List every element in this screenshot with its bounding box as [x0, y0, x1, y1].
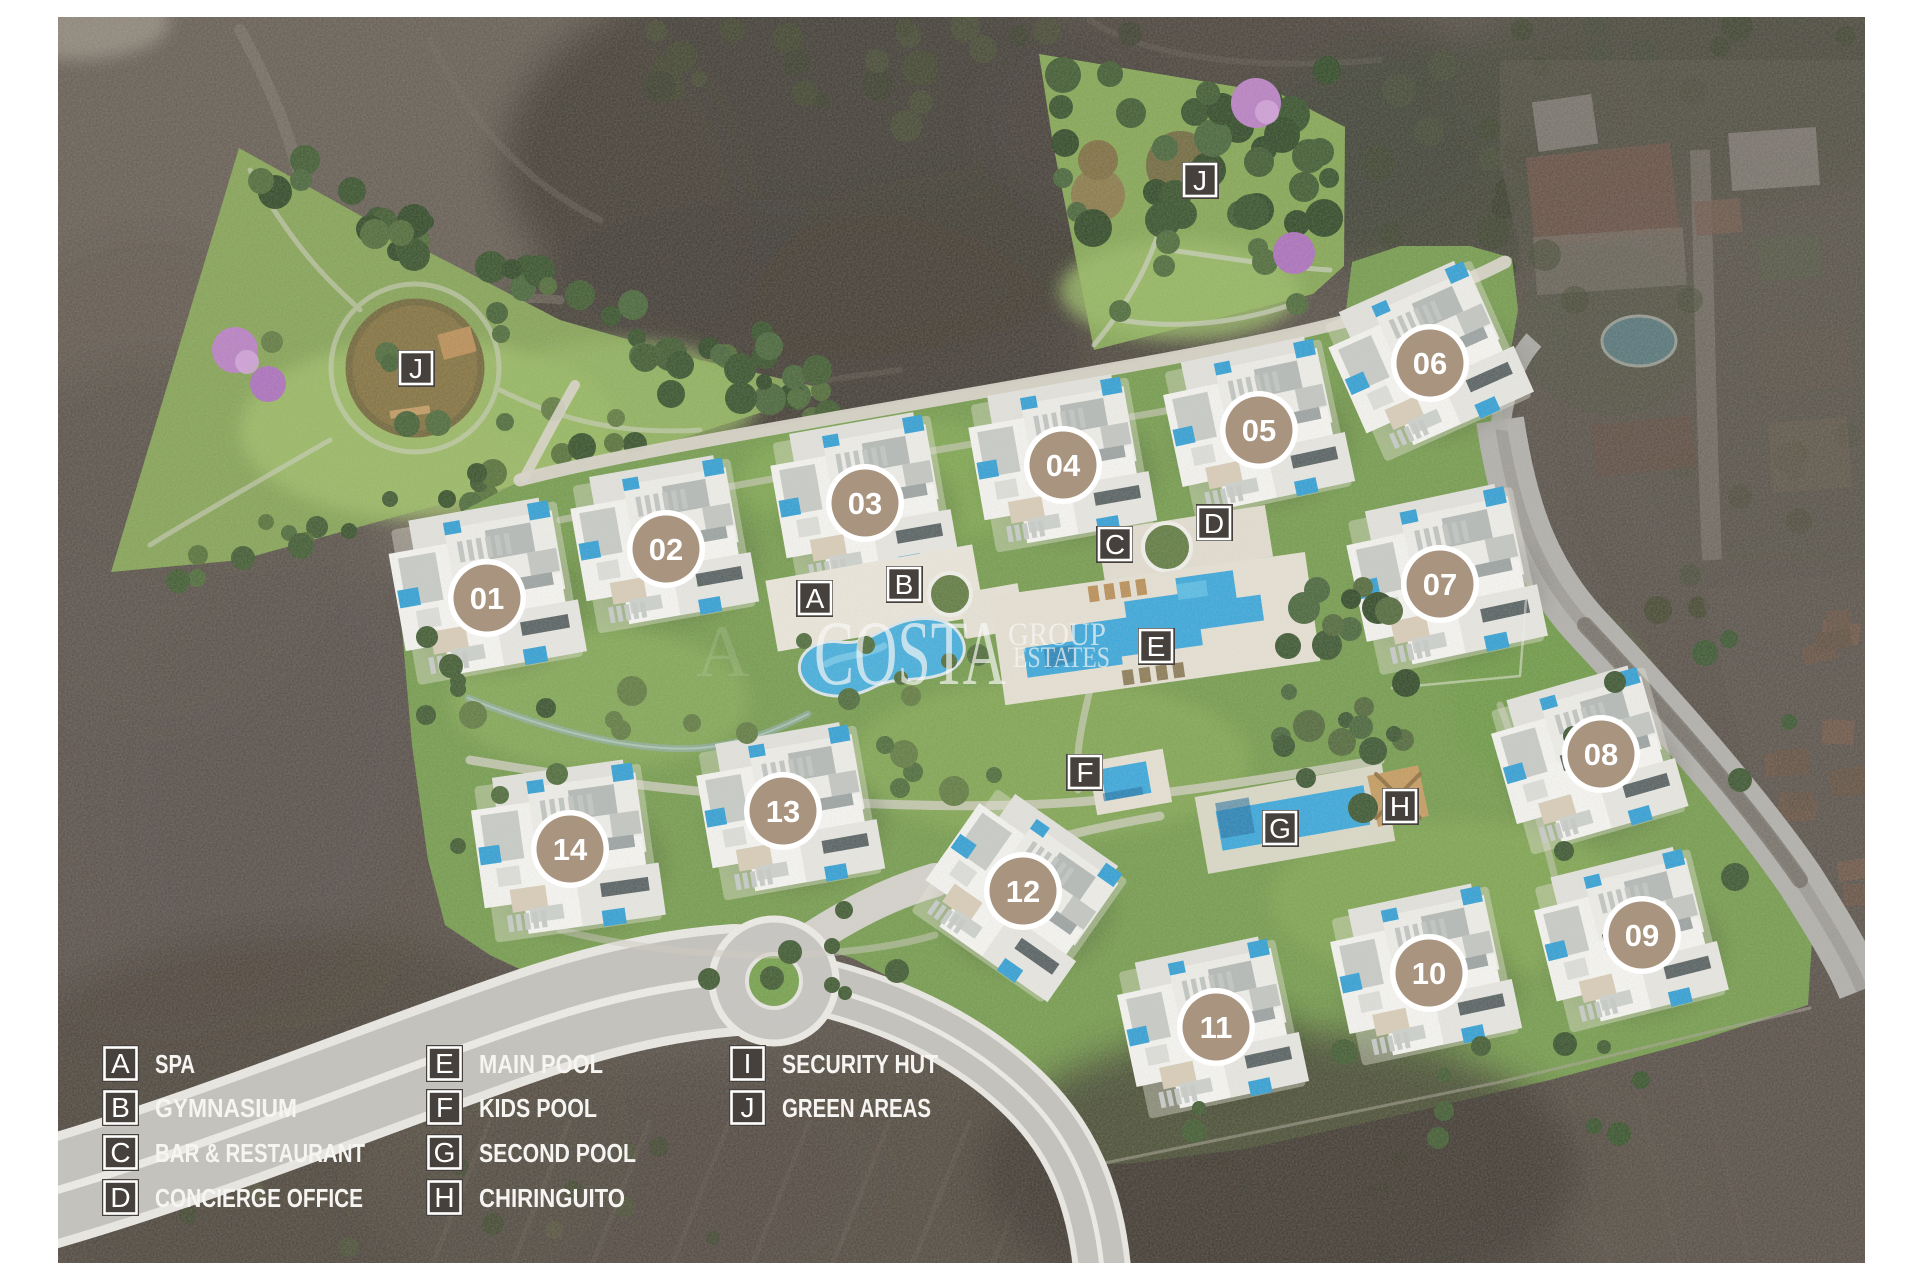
svg-text:04: 04: [1046, 448, 1081, 483]
svg-text:H: H: [1390, 791, 1410, 822]
svg-text:09: 09: [1625, 918, 1659, 953]
svg-text:SPA: SPA: [155, 1049, 195, 1079]
svg-text:13: 13: [766, 794, 800, 829]
svg-text:J: J: [409, 353, 423, 384]
svg-text:F: F: [436, 1092, 453, 1123]
svg-text:11: 11: [1200, 1010, 1233, 1045]
svg-text:MAIN POOL: MAIN POOL: [479, 1049, 603, 1079]
svg-text:10: 10: [1412, 956, 1446, 991]
svg-text:F: F: [1076, 757, 1093, 788]
svg-text:E: E: [1147, 631, 1166, 662]
svg-text:GYMNASIUM: GYMNASIUM: [155, 1093, 297, 1123]
svg-text:I: I: [744, 1048, 752, 1079]
svg-text:H: H: [434, 1182, 454, 1213]
svg-text:BAR & RESTAURANT: BAR & RESTAURANT: [155, 1138, 365, 1168]
svg-text:C: C: [1105, 529, 1125, 560]
svg-text:08: 08: [1584, 737, 1618, 772]
svg-text:B: B: [111, 1092, 130, 1123]
svg-text:14: 14: [553, 832, 588, 867]
svg-text:G: G: [434, 1137, 456, 1168]
svg-text:A: A: [806, 583, 825, 614]
svg-text:03: 03: [848, 486, 882, 521]
svg-text:E: E: [435, 1048, 454, 1079]
svg-text:D: D: [1204, 508, 1224, 539]
svg-text:D: D: [110, 1182, 130, 1213]
svg-text:GREEN AREAS: GREEN AREAS: [782, 1093, 931, 1123]
svg-text:CONCIERGE OFFICE: CONCIERGE OFFICE: [155, 1183, 363, 1213]
svg-text:02: 02: [649, 532, 683, 567]
svg-text:KIDS POOL: KIDS POOL: [479, 1093, 597, 1123]
svg-text:06: 06: [1413, 346, 1447, 381]
svg-text:12: 12: [1006, 874, 1040, 909]
svg-text:B: B: [895, 569, 914, 600]
svg-text:J: J: [1193, 165, 1207, 196]
svg-text:A: A: [111, 1048, 130, 1079]
svg-text:J: J: [741, 1092, 755, 1123]
svg-text:01: 01: [470, 581, 504, 616]
svg-text:07: 07: [1423, 567, 1457, 602]
svg-text:SECOND POOL: SECOND POOL: [479, 1138, 636, 1168]
svg-text:SECURITY HUT: SECURITY HUT: [782, 1049, 938, 1079]
svg-text:05: 05: [1242, 413, 1276, 448]
svg-text:CHIRINGUITO: CHIRINGUITO: [479, 1183, 625, 1213]
svg-text:C: C: [110, 1137, 130, 1168]
svg-text:G: G: [1269, 813, 1291, 844]
